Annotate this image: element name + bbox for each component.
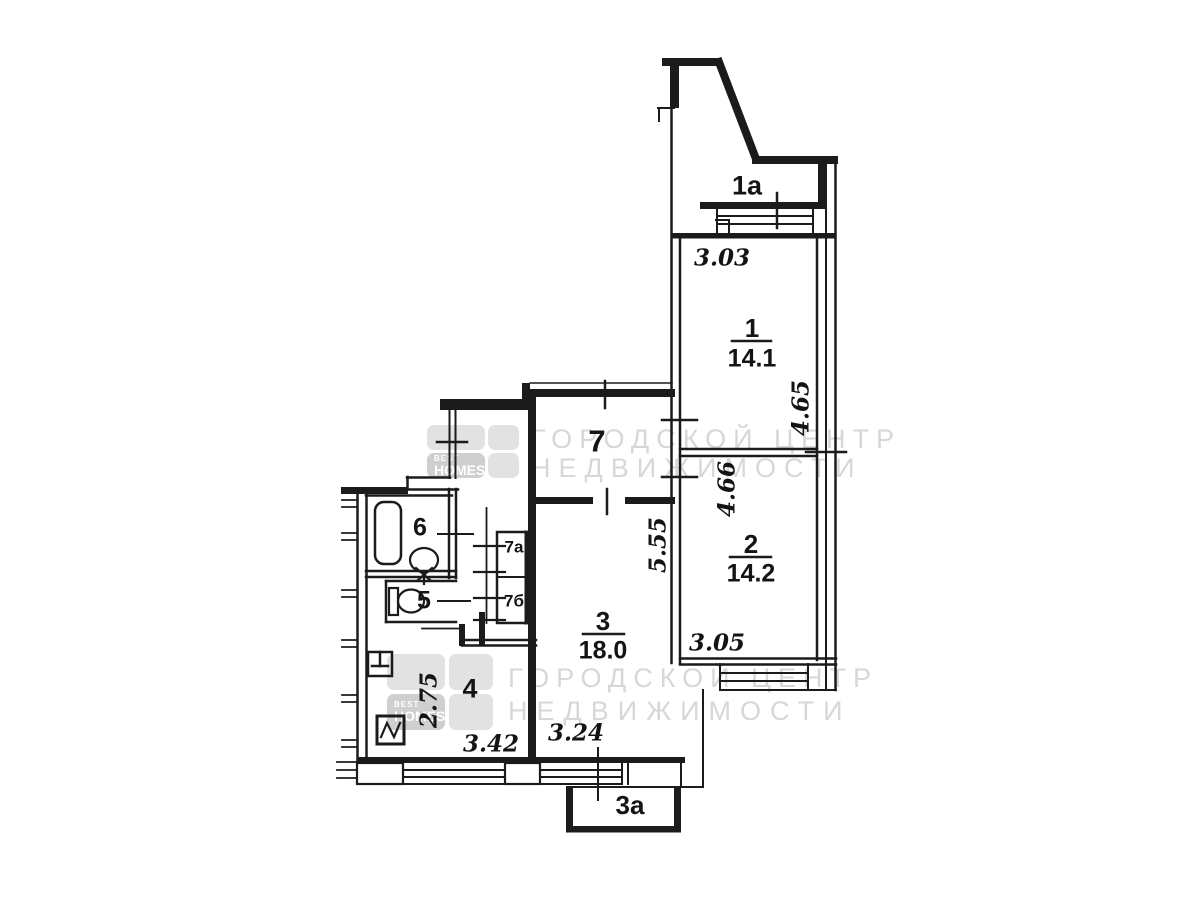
room2-width-dim: 3.05 — [689, 632, 745, 655]
bathroom-sink-icon — [410, 548, 438, 584]
room3-width-dim: 3.24 — [548, 722, 604, 745]
room1-height-dim: 4.65 — [790, 380, 813, 436]
room1-number: 1 — [745, 315, 759, 341]
room3-area: 18.0 — [579, 639, 628, 664]
room2-number: 2 — [744, 531, 758, 557]
window-balcony-1a — [716, 193, 813, 233]
room2-area: 14.2 — [727, 562, 776, 587]
room1-area: 14.1 — [728, 347, 777, 372]
kitchen-sink-icon — [368, 652, 392, 676]
room3-number: 3 — [596, 608, 610, 634]
balcony-1a-label: 1а — [732, 173, 762, 200]
closet-7b-label: 7б — [504, 593, 524, 610]
bathtub-icon — [375, 502, 401, 564]
window-room2 — [677, 664, 836, 787]
closet-7a-label: 7а — [505, 539, 524, 556]
floor-plan-page: BEST HOMES ГОРОДСКОЙ ЦЕНТР НЕДВИЖИМОСТИ … — [0, 0, 1200, 900]
bathroom-number: 6 — [413, 516, 427, 541]
stove-icon — [377, 716, 404, 744]
kitchen-height-dim: 2.75 — [418, 672, 441, 728]
entry-walls — [341, 383, 530, 494]
room1-width-dim: 3.03 — [694, 247, 750, 270]
area-fraction-lines — [583, 341, 771, 634]
left-exterior-wall — [342, 490, 367, 762]
room3-height-dim: 5.55 — [647, 517, 670, 573]
room2-height-dim: 4.66 — [716, 461, 739, 517]
balcony-3a-label: 3а — [616, 792, 645, 818]
hall-7-number: 7 — [588, 426, 605, 457]
toilet-number: 5 — [417, 589, 431, 614]
window-kitchen — [337, 762, 540, 784]
kitchen-width-dim: 3.42 — [463, 733, 519, 756]
kitchen-number: 4 — [462, 676, 477, 703]
window-room3 — [540, 763, 681, 787]
